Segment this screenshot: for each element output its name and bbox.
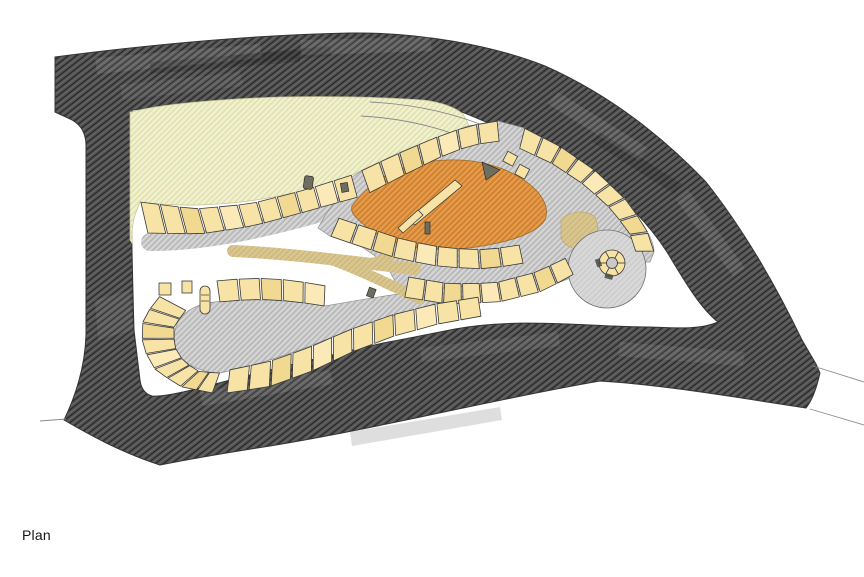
unit-cell [405, 277, 425, 300]
road-edge-line-left [40, 419, 66, 421]
unit-cell [424, 280, 443, 303]
kiosk-marker-west-2 [340, 182, 348, 192]
unit-cell [459, 249, 479, 269]
unit-cell [217, 279, 239, 302]
site-plan-figure: Plan [0, 0, 864, 577]
unit-cell [459, 297, 482, 320]
unit-cell [305, 283, 325, 306]
hook-square-a [159, 283, 171, 295]
unit-cell [261, 279, 282, 301]
unit-cell [227, 366, 249, 393]
plan-caption: Plan [22, 527, 51, 543]
road-edge-line-upper-right [813, 366, 864, 382]
site-plan-drawing [0, 0, 864, 577]
unit-cell [249, 361, 270, 390]
hook-square-b [182, 281, 192, 293]
unit-cell [416, 304, 437, 330]
kiosk-marker-west [303, 176, 314, 190]
stair-marker-south [366, 287, 376, 298]
unit-cell [296, 187, 319, 212]
unit-cell [315, 181, 338, 207]
unit-cell [481, 282, 501, 302]
unit-cell [437, 301, 459, 324]
unit-cell [437, 247, 457, 268]
road-edge-line-lower-right [810, 409, 864, 425]
unit-cell [283, 280, 303, 303]
unit-cell [478, 121, 499, 143]
plaza-stair-marker [425, 222, 430, 234]
unit-cell [395, 310, 416, 336]
hook-capsule-structure [200, 286, 210, 314]
unit-cell [416, 243, 437, 266]
unit-cell [394, 238, 416, 262]
unit-cell [500, 245, 523, 266]
unit-cell [480, 248, 501, 269]
unit-cell [239, 278, 260, 300]
